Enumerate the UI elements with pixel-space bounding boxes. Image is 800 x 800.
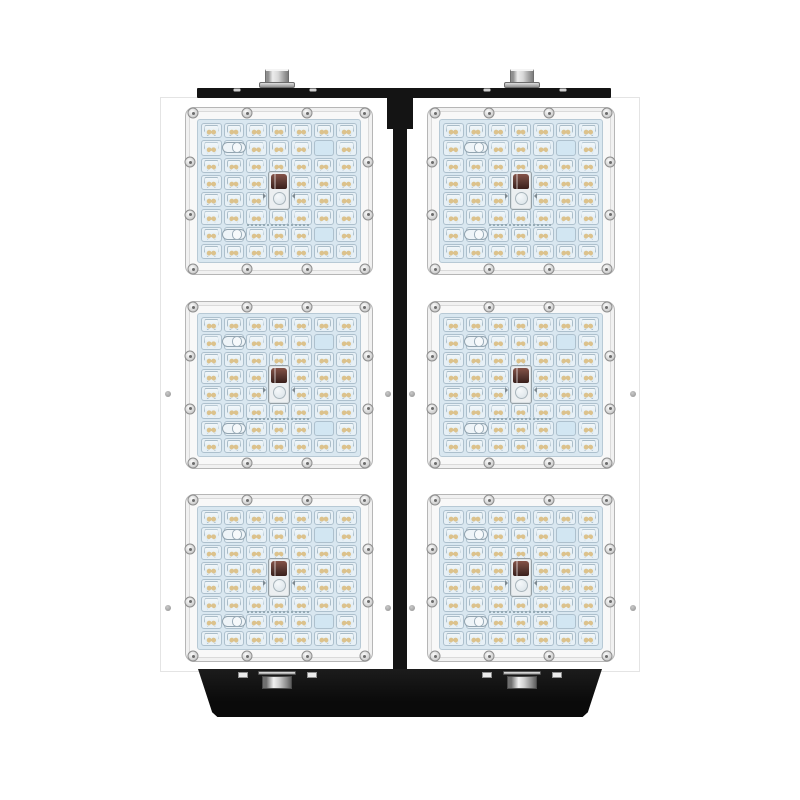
led-lens	[204, 512, 219, 523]
led-module	[427, 494, 615, 662]
led-cell	[466, 596, 487, 611]
frame-screw	[484, 458, 495, 469]
led-lens	[204, 354, 219, 365]
pill-connector-cell	[224, 421, 245, 436]
frame-screw	[242, 495, 253, 506]
led-lens	[536, 440, 551, 451]
led-lens	[339, 142, 354, 153]
sensor-window	[513, 174, 529, 189]
led-lens	[339, 512, 354, 523]
led-cell	[336, 527, 357, 542]
led-cell	[201, 244, 222, 259]
led-lens	[227, 177, 242, 188]
led-cell	[269, 510, 290, 525]
led-cell	[488, 403, 509, 418]
led-cell	[246, 140, 267, 155]
led-cell	[201, 510, 222, 525]
led-lens	[559, 440, 574, 451]
led-lens	[204, 423, 219, 434]
led-cell	[246, 614, 267, 629]
led-lens	[339, 598, 354, 609]
pill-connector-cell	[224, 227, 245, 242]
led-cell	[443, 562, 464, 577]
led-lens	[204, 336, 219, 347]
led-lens	[581, 246, 596, 257]
led-lens	[227, 581, 242, 592]
led-lens	[227, 211, 242, 222]
led-cell	[578, 527, 599, 542]
led-lens	[581, 581, 596, 592]
led-cell	[291, 631, 312, 646]
led-cell	[224, 352, 245, 367]
led-lens	[317, 633, 332, 644]
led-lens	[446, 194, 461, 205]
led-cell	[246, 438, 267, 453]
led-lens	[581, 319, 596, 330]
led-cell	[443, 614, 464, 629]
led-cell	[466, 403, 487, 418]
led-lens	[204, 319, 219, 330]
led-cell	[291, 596, 312, 611]
led-cell	[556, 438, 577, 453]
led-cell	[511, 140, 532, 155]
led-lens	[272, 319, 287, 330]
led-cell	[314, 369, 335, 384]
led-lens	[536, 319, 551, 330]
led-lens	[272, 405, 287, 416]
led-cell	[291, 175, 312, 190]
led-cell	[336, 334, 357, 349]
led-lens	[317, 177, 332, 188]
pill-connector-ring	[232, 616, 243, 627]
led-lens	[581, 529, 596, 540]
led-lens	[204, 142, 219, 153]
bolt-washer	[503, 671, 541, 675]
pill-connector-cell	[466, 614, 487, 629]
led-cell	[578, 123, 599, 138]
led-lens	[204, 246, 219, 257]
led-lens	[514, 405, 529, 416]
led-cell	[246, 244, 267, 259]
led-cell	[511, 438, 532, 453]
led-lens	[204, 177, 219, 188]
led-cell	[246, 403, 267, 418]
led-lens	[294, 423, 309, 434]
led-cell	[466, 545, 487, 560]
led-cell	[336, 369, 357, 384]
led-cell	[314, 244, 335, 259]
blank-cell	[556, 421, 577, 436]
blank-cell	[314, 227, 335, 242]
led-cell	[336, 386, 357, 401]
led-lens	[204, 194, 219, 205]
led-lens	[536, 194, 551, 205]
led-lens	[317, 371, 332, 382]
led-cell	[246, 317, 267, 332]
frame-screw	[185, 544, 196, 555]
led-lens	[446, 405, 461, 416]
led-cell	[533, 421, 554, 436]
led-lens	[227, 440, 242, 451]
body-screw	[385, 391, 391, 397]
led-cell	[201, 527, 222, 542]
led-lens	[249, 246, 264, 257]
led-cell	[488, 140, 509, 155]
led-cell	[533, 438, 554, 453]
led-cell	[246, 421, 267, 436]
frame-screw	[484, 108, 495, 119]
led-lens	[204, 633, 219, 644]
led-lens	[249, 440, 264, 451]
frame-screw	[363, 157, 374, 168]
led-cell	[336, 596, 357, 611]
pill-connector-cell	[466, 527, 487, 542]
frame-screw	[430, 495, 441, 506]
led-cell	[488, 369, 509, 384]
led-lens	[581, 371, 596, 382]
frame-screw	[188, 302, 199, 313]
led-lens	[446, 211, 461, 222]
led-cell	[336, 631, 357, 646]
led-cell	[533, 140, 554, 155]
led-lens	[491, 405, 506, 416]
sensor-window	[513, 368, 529, 383]
led-lens	[204, 125, 219, 136]
led-cell	[201, 579, 222, 594]
bar-face-screw	[560, 89, 567, 92]
led-cell	[224, 438, 245, 453]
led-cell	[533, 334, 554, 349]
led-lens	[491, 529, 506, 540]
led-lens	[272, 547, 287, 558]
led-lens	[317, 405, 332, 416]
led-cell	[291, 209, 312, 224]
center-sensor	[268, 558, 290, 597]
blank-cell	[314, 334, 335, 349]
led-cell	[511, 227, 532, 242]
frame-screw	[544, 108, 555, 119]
led-lens	[339, 319, 354, 330]
led-lens	[536, 246, 551, 257]
led-lens	[491, 211, 506, 222]
led-cell	[291, 510, 312, 525]
led-cell	[556, 158, 577, 173]
led-lens	[227, 564, 242, 575]
led-lens	[536, 581, 551, 592]
module-print-line	[247, 611, 310, 613]
led-lens	[272, 616, 287, 627]
led-lens	[249, 229, 264, 240]
led-lens	[294, 229, 309, 240]
led-lens	[204, 616, 219, 627]
led-lens	[339, 354, 354, 365]
bracket-stud	[482, 672, 492, 678]
led-cell	[466, 123, 487, 138]
led-cell	[201, 192, 222, 207]
led-lens	[317, 354, 332, 365]
led-cell	[443, 579, 464, 594]
led-lens	[559, 633, 574, 644]
led-lens	[514, 125, 529, 136]
led-cell	[269, 527, 290, 542]
center-sensor	[510, 171, 532, 210]
led-cell	[291, 403, 312, 418]
led-cell	[224, 244, 245, 259]
frame-screw	[605, 403, 616, 414]
led-cell	[443, 352, 464, 367]
frame-screw	[359, 651, 370, 662]
led-lens	[559, 564, 574, 575]
led-lens	[581, 194, 596, 205]
led-cell	[556, 192, 577, 207]
led-lens	[227, 512, 242, 523]
led-cell	[443, 596, 464, 611]
led-lens	[204, 440, 219, 451]
led-cell	[314, 158, 335, 173]
led-lens	[249, 125, 264, 136]
led-lens	[491, 194, 506, 205]
led-cell	[201, 140, 222, 155]
led-cell	[533, 562, 554, 577]
sensor-arrow-right-icon	[289, 580, 295, 586]
led-lens	[536, 547, 551, 558]
led-lens	[514, 229, 529, 240]
led-lens	[469, 512, 484, 523]
led-lens	[491, 564, 506, 575]
led-cell	[201, 403, 222, 418]
led-lens	[469, 160, 484, 171]
led-lens	[469, 194, 484, 205]
led-lens	[227, 125, 242, 136]
led-lens	[581, 564, 596, 575]
frame-screw	[242, 264, 253, 275]
frame-screw	[302, 458, 313, 469]
led-cell	[224, 209, 245, 224]
led-lens	[249, 177, 264, 188]
frame-screw	[601, 302, 612, 313]
led-cell	[269, 140, 290, 155]
led-cell	[246, 545, 267, 560]
led-cell	[488, 244, 509, 259]
led-cell	[246, 596, 267, 611]
led-cell	[511, 614, 532, 629]
frame-screw	[484, 651, 495, 662]
led-lens	[294, 512, 309, 523]
led-cell	[201, 631, 222, 646]
led-cell	[578, 352, 599, 367]
frame-screw	[427, 351, 438, 362]
led-cell	[556, 579, 577, 594]
led-lens	[204, 598, 219, 609]
frame-screw	[188, 264, 199, 275]
led-cell	[488, 334, 509, 349]
bar-face-screw	[310, 89, 317, 92]
led-cell	[556, 562, 577, 577]
led-cell	[443, 438, 464, 453]
led-module	[185, 107, 373, 275]
led-cell	[511, 334, 532, 349]
frame-screw	[427, 157, 438, 168]
pill-connector-cell	[466, 334, 487, 349]
led-cell	[443, 158, 464, 173]
led-lens	[446, 423, 461, 434]
led-lens	[294, 616, 309, 627]
led-cell	[336, 123, 357, 138]
led-cell	[291, 527, 312, 542]
center-divider-bar	[393, 97, 407, 672]
led-cell	[511, 631, 532, 646]
led-lens	[536, 633, 551, 644]
bolt-head	[510, 69, 534, 83]
led-lens	[339, 440, 354, 451]
led-cell	[488, 527, 509, 542]
led-lens	[204, 529, 219, 540]
led-cell	[443, 192, 464, 207]
led-cell	[488, 510, 509, 525]
led-cell	[201, 209, 222, 224]
led-lens	[249, 529, 264, 540]
led-lens	[249, 564, 264, 575]
led-lens	[294, 371, 309, 382]
led-lens	[491, 371, 506, 382]
led-cell	[578, 209, 599, 224]
sensor-arrow-right-icon	[531, 387, 537, 393]
blank-cell	[556, 227, 577, 242]
module-print-line	[247, 418, 310, 420]
frame-screw	[601, 458, 612, 469]
led-lens	[469, 405, 484, 416]
led-cell	[443, 403, 464, 418]
blank-cell	[314, 140, 335, 155]
led-cell	[488, 596, 509, 611]
led-lens	[581, 229, 596, 240]
led-lens	[317, 581, 332, 592]
led-cell	[443, 227, 464, 242]
frame-screw	[185, 157, 196, 168]
led-lens	[559, 194, 574, 205]
led-cell	[336, 175, 357, 190]
frame-screw	[188, 108, 199, 119]
led-lens	[446, 529, 461, 540]
led-lens	[249, 319, 264, 330]
sensor-arrow-left-icon	[263, 387, 269, 393]
led-lens	[339, 160, 354, 171]
body-screw	[630, 391, 636, 397]
frame-screw	[302, 651, 313, 662]
led-lens	[249, 633, 264, 644]
led-lens	[514, 633, 529, 644]
led-cell	[224, 175, 245, 190]
led-lens	[227, 246, 242, 257]
led-lens	[536, 336, 551, 347]
led-cell	[201, 227, 222, 242]
led-cell	[466, 158, 487, 173]
led-cell	[201, 158, 222, 173]
led-lens	[469, 354, 484, 365]
led-lens	[339, 336, 354, 347]
frame-screw	[185, 209, 196, 220]
led-lens	[227, 405, 242, 416]
frame-screw	[430, 264, 441, 275]
frame-screw	[605, 351, 616, 362]
led-cell	[466, 631, 487, 646]
led-lens	[491, 423, 506, 434]
led-lens	[491, 354, 506, 365]
led-cell	[488, 227, 509, 242]
led-lens	[581, 512, 596, 523]
led-lens	[339, 529, 354, 540]
led-lens	[491, 229, 506, 240]
led-cell	[533, 317, 554, 332]
led-lens	[581, 405, 596, 416]
led-lens	[249, 547, 264, 558]
led-lens	[249, 512, 264, 523]
led-cell	[443, 175, 464, 190]
sensor-window	[271, 368, 287, 383]
led-cell	[578, 158, 599, 173]
bar-face-screw	[234, 89, 241, 92]
led-cell	[314, 631, 335, 646]
led-lens	[204, 581, 219, 592]
led-lens	[559, 211, 574, 222]
led-lens	[317, 388, 332, 399]
led-panel	[439, 506, 603, 650]
frame-screw	[242, 302, 253, 313]
led-cell	[578, 334, 599, 349]
frame-screw	[427, 544, 438, 555]
frame-screw	[544, 495, 555, 506]
frame-screw	[302, 302, 313, 313]
frame-screw	[185, 403, 196, 414]
led-lens	[559, 371, 574, 382]
led-panel	[197, 313, 361, 457]
frame-screw	[544, 302, 555, 313]
sensor-arrow-right-icon	[531, 193, 537, 199]
led-cell	[224, 317, 245, 332]
led-cell	[443, 631, 464, 646]
blank-cell	[556, 334, 577, 349]
led-lens	[446, 142, 461, 153]
led-lens	[581, 616, 596, 627]
led-cell	[488, 158, 509, 173]
led-panel	[197, 119, 361, 263]
led-lens	[581, 423, 596, 434]
bottom-mounting-bolt	[502, 671, 542, 693]
led-cell	[336, 438, 357, 453]
led-lens	[514, 246, 529, 257]
led-cell	[269, 596, 290, 611]
led-lens	[294, 319, 309, 330]
blank-cell	[556, 140, 577, 155]
led-cell	[314, 510, 335, 525]
led-cell	[578, 545, 599, 560]
led-lens	[339, 423, 354, 434]
led-cell	[314, 579, 335, 594]
led-lens	[294, 598, 309, 609]
led-lens	[581, 547, 596, 558]
led-lens	[469, 211, 484, 222]
led-cell	[578, 140, 599, 155]
led-lens	[294, 125, 309, 136]
bottom-mounting-bolt	[257, 671, 297, 693]
led-cell	[291, 369, 312, 384]
led-cell	[488, 631, 509, 646]
center-sensor	[268, 171, 290, 210]
center-sensor	[268, 365, 290, 404]
led-lens	[272, 512, 287, 523]
led-cell	[201, 596, 222, 611]
led-lens	[491, 246, 506, 257]
